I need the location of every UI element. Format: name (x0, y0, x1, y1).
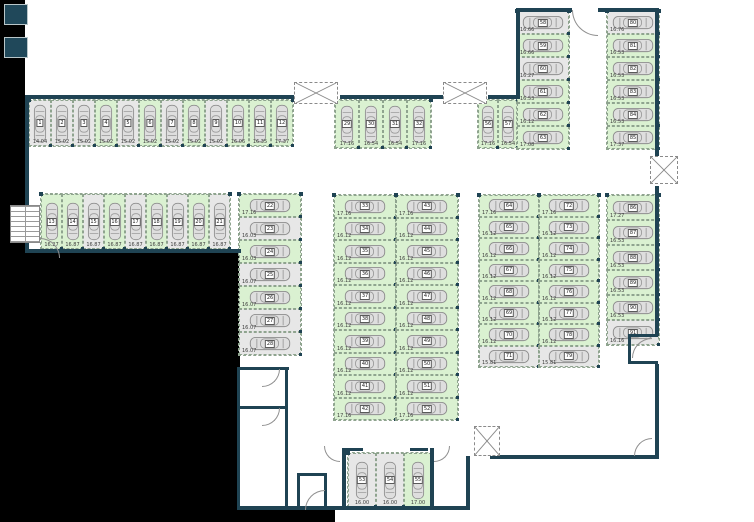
shaft-symbol (474, 426, 500, 456)
space-number: 60 (538, 65, 548, 73)
space-number: 71 (504, 352, 514, 360)
space-number: 11 (255, 119, 265, 127)
space-number: 5 (124, 119, 131, 127)
door-arc (324, 446, 340, 462)
wall-segment (345, 448, 363, 451)
space-dimension: 17.27 (610, 213, 624, 219)
space-number: 38 (360, 315, 370, 323)
space-dimension: 16.27 (520, 73, 534, 79)
parking-zone-room-53-55: 5316.005416.005517.00 (347, 452, 433, 508)
wall-segment (488, 95, 516, 99)
space-dimension: 15.02 (121, 139, 135, 145)
space-number: 14 (67, 218, 77, 226)
parking-space-16: 1616.87 (104, 194, 125, 249)
space-dimension: 16.03 (242, 233, 256, 239)
parking-space-83: 8316.53 (607, 80, 659, 103)
space-dimension: 15.81 (482, 360, 496, 366)
space-number: 46 (422, 270, 432, 278)
space-dimension: 16.12 (337, 278, 351, 284)
space-dimension: 15.02 (99, 139, 113, 145)
space-number: 65 (504, 223, 514, 231)
parking-space-67: 6716.12 (479, 260, 539, 282)
space-number: 3 (80, 119, 87, 127)
space-dimension: 16.07 (242, 302, 256, 308)
parking-zone-col-58-63: 5816.665916.666016.276116.536216.126317.… (516, 10, 570, 150)
parking-space-52: 5217.16 (396, 398, 458, 421)
space-dimension: 16.12 (482, 231, 496, 237)
parking-space-46: 4616.12 (396, 263, 458, 286)
car-graphic: 19 (168, 195, 187, 248)
space-dimension: 16.87 (65, 242, 79, 248)
car-graphic: 55 (405, 454, 431, 506)
space-dimension: 15.02 (165, 139, 179, 145)
space-number: 76 (564, 288, 574, 296)
parking-space-30: 3016.54 (359, 100, 383, 148)
door-arc (572, 10, 598, 36)
space-dimension: 16.53 (610, 263, 624, 269)
parking-space-8: 815.02 (183, 100, 205, 146)
space-dimension: 16.66 (520, 50, 534, 56)
space-dimension: 16.12 (337, 256, 351, 262)
space-number: 10 (233, 119, 243, 127)
space-dimension: 16.12 (542, 317, 556, 323)
space-number: 42 (360, 405, 370, 413)
space-dimension: 16.12 (520, 119, 534, 125)
parking-space-61: 6116.53 (517, 80, 569, 103)
space-number: 57 (503, 120, 513, 128)
parking-zone-row-13-21: 1316.271416.871516.871616.871716.871816.… (40, 193, 231, 250)
space-number: 74 (564, 245, 574, 253)
wall-segment (297, 473, 327, 476)
space-number: 52 (422, 405, 432, 413)
space-dimension: 15.02 (55, 139, 69, 145)
parking-zone-row-29-32: 2917.163016.543116.543217.16 (334, 99, 432, 149)
parking-space-20: 2016.87 (188, 194, 209, 249)
car-graphic: 18 (147, 195, 166, 248)
parking-space-6: 615.02 (139, 100, 161, 146)
space-number: 80 (628, 19, 638, 27)
space-dimension: 16.53 (610, 73, 624, 79)
space-number: 51 (422, 382, 432, 390)
space-dimension: 17.16 (542, 210, 556, 216)
space-dimension: 16.06 (231, 139, 245, 145)
wall-segment (285, 367, 288, 509)
space-number: 61 (538, 88, 548, 96)
space-number: 75 (564, 266, 574, 274)
shaft-cross-icon (444, 83, 486, 103)
space-number: 40 (360, 360, 370, 368)
parking-space-25: 2516.07 (239, 263, 301, 286)
parking-space-7: 715.02 (161, 100, 183, 146)
space-number: 89 (628, 279, 638, 287)
parking-space-64: 6417.16 (479, 195, 539, 217)
space-number: 64 (504, 202, 514, 210)
parking-space-22: 2217.16 (239, 194, 301, 217)
door-arc (305, 490, 325, 510)
space-number: 56 (483, 120, 493, 128)
space-dimension: 15.02 (209, 139, 223, 145)
parking-space-50: 5016.12 (396, 353, 458, 376)
shaft-cross-icon (475, 427, 499, 455)
space-dimension: 16.54 (388, 141, 402, 147)
parking-space-29: 2917.16 (335, 100, 359, 148)
parking-space-89: 8916.53 (607, 270, 659, 295)
space-dimension: 16.12 (337, 346, 351, 352)
outside-area (0, 250, 240, 522)
wall-segment (237, 506, 470, 510)
parking-space-19: 1916.87 (167, 194, 188, 249)
space-dimension: 16.07 (242, 325, 256, 331)
space-number: 77 (564, 309, 574, 317)
door-arc (434, 446, 450, 462)
space-number: 20 (193, 218, 203, 226)
space-number: 72 (564, 202, 574, 210)
parking-space-47: 4716.12 (396, 285, 458, 308)
parking-space-26: 2616.07 (239, 286, 301, 309)
parking-space-14: 1416.87 (62, 194, 83, 249)
wall-segment (237, 367, 240, 509)
space-dimension: 16.12 (399, 301, 413, 307)
space-dimension: 16.87 (170, 242, 184, 248)
parking-space-86: 8617.27 (607, 195, 659, 220)
space-dimension: 16.12 (482, 296, 496, 302)
space-dimension: 16.12 (399, 256, 413, 262)
space-dimension: 15.02 (187, 139, 201, 145)
space-number: 44 (422, 225, 432, 233)
space-dimension: 17.16 (482, 210, 496, 216)
space-dimension: 16.12 (399, 323, 413, 329)
parking-space-85: 8517.37 (607, 126, 659, 149)
parking-space-31: 3116.54 (383, 100, 407, 148)
space-dimension: 16.12 (542, 339, 556, 345)
space-dimension: 16.12 (482, 317, 496, 323)
space-dimension: 17.37 (275, 139, 289, 145)
parking-space-68: 6816.12 (479, 281, 539, 303)
space-dimension: 15.02 (143, 139, 157, 145)
space-dimension: 16.66 (520, 27, 534, 33)
parking-space-60: 6016.27 (517, 57, 569, 80)
parking-space-4: 415.02 (95, 100, 117, 146)
space-number: 1 (36, 119, 43, 127)
space-number: 8 (190, 119, 197, 127)
parking-space-41: 4116.12 (334, 375, 396, 398)
space-number: 26 (265, 294, 275, 302)
space-number: 53 (357, 476, 367, 484)
parking-floor-plan: 114.04215.02315.02415.02515.02615.02715.… (0, 0, 754, 522)
space-number: 68 (504, 288, 514, 296)
wall-segment (598, 8, 659, 12)
car-graphic: 17 (126, 195, 145, 248)
space-dimension: 16.12 (399, 391, 413, 397)
parking-zone-row-1-12: 114.04215.02315.02415.02515.02615.02715.… (28, 99, 294, 147)
space-number: 50 (422, 360, 432, 368)
space-dimension: 16.12 (337, 301, 351, 307)
wall-segment (342, 448, 346, 508)
parking-zone-col-43-52: 4317.164416.124516.124616.124716.124816.… (395, 194, 459, 421)
space-dimension: 16.87 (107, 242, 121, 248)
space-dimension: 16.53 (520, 96, 534, 102)
parking-zone-col-22-28: 2217.162316.032416.032516.072616.072716.… (238, 193, 302, 356)
space-dimension: 17.37 (610, 142, 624, 148)
wall-segment (297, 473, 300, 508)
space-number: 33 (360, 202, 370, 210)
wall-segment (628, 361, 658, 364)
space-number: 90 (628, 304, 638, 312)
space-number: 29 (342, 120, 352, 128)
wall-segment (466, 456, 470, 508)
space-number: 84 (628, 111, 638, 119)
parking-space-27: 2716.07 (239, 309, 301, 332)
space-number: 30 (366, 120, 376, 128)
parking-space-42: 4217.16 (334, 398, 396, 421)
parking-zone-col-72-79: 7217.167316.127416.127516.127616.127716.… (538, 194, 600, 368)
space-number: 15 (88, 218, 98, 226)
space-dimension: 16.12 (482, 274, 496, 280)
wall-segment (25, 95, 295, 99)
wall-segment (655, 364, 659, 459)
car-graphic: 54 (377, 454, 403, 506)
space-number: 24 (265, 248, 275, 256)
parking-space-57: 5716.54 (498, 100, 518, 148)
parking-space-28: 2816.07 (239, 332, 301, 355)
space-number: 18 (151, 218, 161, 226)
parking-space-79: 7915.81 (539, 346, 599, 368)
car-graphic: 53 (349, 454, 375, 506)
parking-space-32: 3217.16 (407, 100, 431, 148)
parking-space-15: 1516.87 (83, 194, 104, 249)
parking-space-63: 6317.08 (517, 126, 569, 149)
space-number: 41 (360, 382, 370, 390)
parking-space-35: 3516.12 (334, 240, 396, 263)
parking-space-82: 8216.53 (607, 57, 659, 80)
parking-space-49: 4916.12 (396, 330, 458, 353)
parking-space-54: 5416.00 (376, 453, 404, 507)
space-number: 4 (102, 119, 109, 127)
space-dimension: 16.12 (337, 368, 351, 374)
space-dimension: 16.87 (212, 242, 226, 248)
parking-zone-col-64-71: 6417.166516.126616.126716.126816.126916.… (478, 194, 540, 368)
parking-zone-col-86-91: 8617.278716.538816.538916.539016.539116.… (606, 194, 660, 346)
space-number: 62 (538, 111, 548, 119)
space-dimension: 16.07 (242, 279, 256, 285)
parking-space-70: 7016.12 (479, 324, 539, 346)
space-dimension: 16.54 (364, 141, 378, 147)
staircase-symbol (10, 205, 40, 243)
space-number: 28 (265, 340, 275, 348)
space-dimension: 16.07 (242, 348, 256, 354)
parking-space-76: 7616.12 (539, 281, 599, 303)
parking-space-74: 7416.12 (539, 238, 599, 260)
space-number: 73 (564, 223, 574, 231)
parking-space-10: 1016.06 (227, 100, 249, 146)
space-number: 32 (414, 120, 424, 128)
parking-space-17: 1716.87 (125, 194, 146, 249)
space-dimension: 15.81 (542, 360, 556, 366)
parking-space-75: 7516.12 (539, 260, 599, 282)
space-dimension: 16.12 (542, 274, 556, 280)
space-dimension: 16.12 (542, 253, 556, 259)
space-number: 82 (628, 65, 638, 73)
parking-space-81: 8116.53 (607, 34, 659, 57)
parking-space-33: 3317.16 (334, 195, 396, 218)
space-dimension: 17.16 (337, 413, 351, 419)
parking-space-56: 5617.16 (478, 100, 498, 148)
space-dimension: 16.12 (542, 296, 556, 302)
space-number: 66 (504, 245, 514, 253)
parking-space-55: 5517.00 (404, 453, 432, 507)
space-number: 45 (422, 247, 432, 255)
parking-space-51: 5116.12 (396, 375, 458, 398)
parking-space-9: 915.02 (205, 100, 227, 146)
space-number: 31 (390, 120, 400, 128)
space-number: 21 (214, 218, 224, 226)
space-dimension: 16.87 (149, 242, 163, 248)
space-number: 78 (564, 331, 574, 339)
space-number: 67 (504, 266, 514, 274)
car-graphic: 16 (105, 195, 124, 248)
parking-space-40: 4016.12 (334, 353, 396, 376)
space-number: 47 (422, 292, 432, 300)
space-number: 7 (168, 119, 175, 127)
space-dimension: 16.53 (610, 238, 624, 244)
parking-space-65: 6516.12 (479, 217, 539, 239)
parking-space-44: 4416.12 (396, 218, 458, 241)
space-dimension: 16.53 (610, 96, 624, 102)
service-block (4, 37, 28, 58)
parking-space-48: 4816.12 (396, 308, 458, 331)
space-number: 17 (130, 218, 140, 226)
space-dimension: 17.16 (399, 211, 413, 217)
door-arc (634, 438, 652, 456)
space-number: 58 (538, 19, 548, 27)
space-dimension: 16.53 (610, 50, 624, 56)
wall-segment (628, 334, 658, 337)
shaft-symbol (443, 82, 487, 104)
space-dimension: 16.12 (482, 253, 496, 259)
space-number: 63 (538, 134, 548, 142)
shaft-cross-icon (651, 157, 677, 183)
space-number: 9 (212, 119, 219, 127)
parking-space-72: 7217.16 (539, 195, 599, 217)
space-dimension: 14.04 (33, 139, 47, 145)
space-number: 6 (146, 119, 153, 127)
space-dimension: 16.12 (399, 368, 413, 374)
parking-space-3: 315.02 (73, 100, 95, 146)
space-number: 49 (422, 337, 432, 345)
space-number: 23 (265, 225, 275, 233)
space-dimension: 16.87 (86, 242, 100, 248)
shaft-symbol (650, 156, 678, 184)
parking-space-24: 2416.03 (239, 240, 301, 263)
parking-zone-col-80-85: 8016.768116.538216.538316.538416.538517.… (606, 10, 660, 150)
parking-space-90: 9016.53 (607, 295, 659, 320)
parking-space-2: 215.02 (51, 100, 73, 146)
parking-space-69: 6916.12 (479, 303, 539, 325)
space-dimension: 16.87 (191, 242, 205, 248)
space-number: 39 (360, 337, 370, 345)
parking-zone-row-56-57: 5617.165716.54 (477, 99, 519, 149)
space-number: 25 (265, 271, 275, 279)
space-number: 69 (504, 309, 514, 317)
wall-segment (655, 8, 659, 158)
space-dimension: 17.16 (481, 141, 495, 147)
space-dimension: 16.53 (610, 288, 624, 294)
parking-zone-col-33-42: 3317.163416.123516.123616.123716.123816.… (333, 194, 397, 421)
parking-space-34: 3416.12 (334, 218, 396, 241)
car-graphic: 15 (84, 195, 103, 248)
space-number: 27 (265, 317, 275, 325)
space-number: 2 (58, 119, 65, 127)
space-number: 83 (628, 88, 638, 96)
parking-space-77: 7716.12 (539, 303, 599, 325)
parking-space-5: 515.02 (117, 100, 139, 146)
service-block (4, 4, 28, 25)
shaft-cross-icon (295, 83, 337, 103)
car-graphic: 21 (210, 195, 229, 248)
space-dimension: 17.16 (412, 141, 426, 147)
parking-space-23: 2316.03 (239, 217, 301, 240)
space-dimension: 16.12 (337, 391, 351, 397)
car-graphic: 14 (63, 195, 82, 248)
parking-space-45: 4516.12 (396, 240, 458, 263)
space-dimension: 15.02 (77, 139, 91, 145)
space-number: 59 (538, 42, 548, 50)
parking-space-53: 5316.00 (348, 453, 376, 507)
wall-segment (516, 8, 572, 12)
space-number: 16 (109, 218, 119, 226)
parking-space-66: 6616.12 (479, 238, 539, 260)
space-dimension: 16.12 (542, 231, 556, 237)
shaft-symbol (294, 82, 338, 104)
outside-area (240, 508, 335, 522)
parking-space-43: 4317.16 (396, 195, 458, 218)
space-number: 35 (360, 247, 370, 255)
space-dimension: 16.03 (242, 256, 256, 262)
parking-space-88: 8816.53 (607, 245, 659, 270)
parking-space-78: 7816.12 (539, 324, 599, 346)
space-dimension: 16.35 (253, 139, 267, 145)
space-number: 19 (172, 218, 182, 226)
space-dimension: 16.12 (399, 233, 413, 239)
space-number: 87 (628, 229, 638, 237)
space-dimension: 17.08 (520, 142, 534, 148)
space-number: 34 (360, 225, 370, 233)
door-arc (262, 408, 280, 426)
space-dimension: 16.16 (610, 338, 624, 344)
space-number: 85 (628, 134, 638, 142)
parking-space-80: 8016.76 (607, 11, 659, 34)
space-number: 48 (422, 315, 432, 323)
space-number: 13 (46, 218, 56, 226)
parking-space-58: 5816.66 (517, 11, 569, 34)
space-dimension: 16.12 (399, 346, 413, 352)
space-dimension: 16.53 (610, 313, 624, 319)
space-dimension: 16.76 (610, 27, 624, 33)
space-number: 70 (504, 331, 514, 339)
parking-space-18: 1816.87 (146, 194, 167, 249)
wall-segment (655, 186, 659, 336)
space-number: 22 (265, 202, 275, 210)
parking-space-39: 3916.12 (334, 330, 396, 353)
space-number: 54 (385, 476, 395, 484)
parking-space-71: 7115.81 (479, 346, 539, 368)
parking-space-11: 1116.35 (249, 100, 271, 146)
parking-space-73: 7316.12 (539, 217, 599, 239)
space-number: 79 (564, 352, 574, 360)
space-dimension: 16.87 (128, 242, 142, 248)
parking-space-12: 1217.37 (271, 100, 293, 146)
space-number: 81 (628, 42, 638, 50)
